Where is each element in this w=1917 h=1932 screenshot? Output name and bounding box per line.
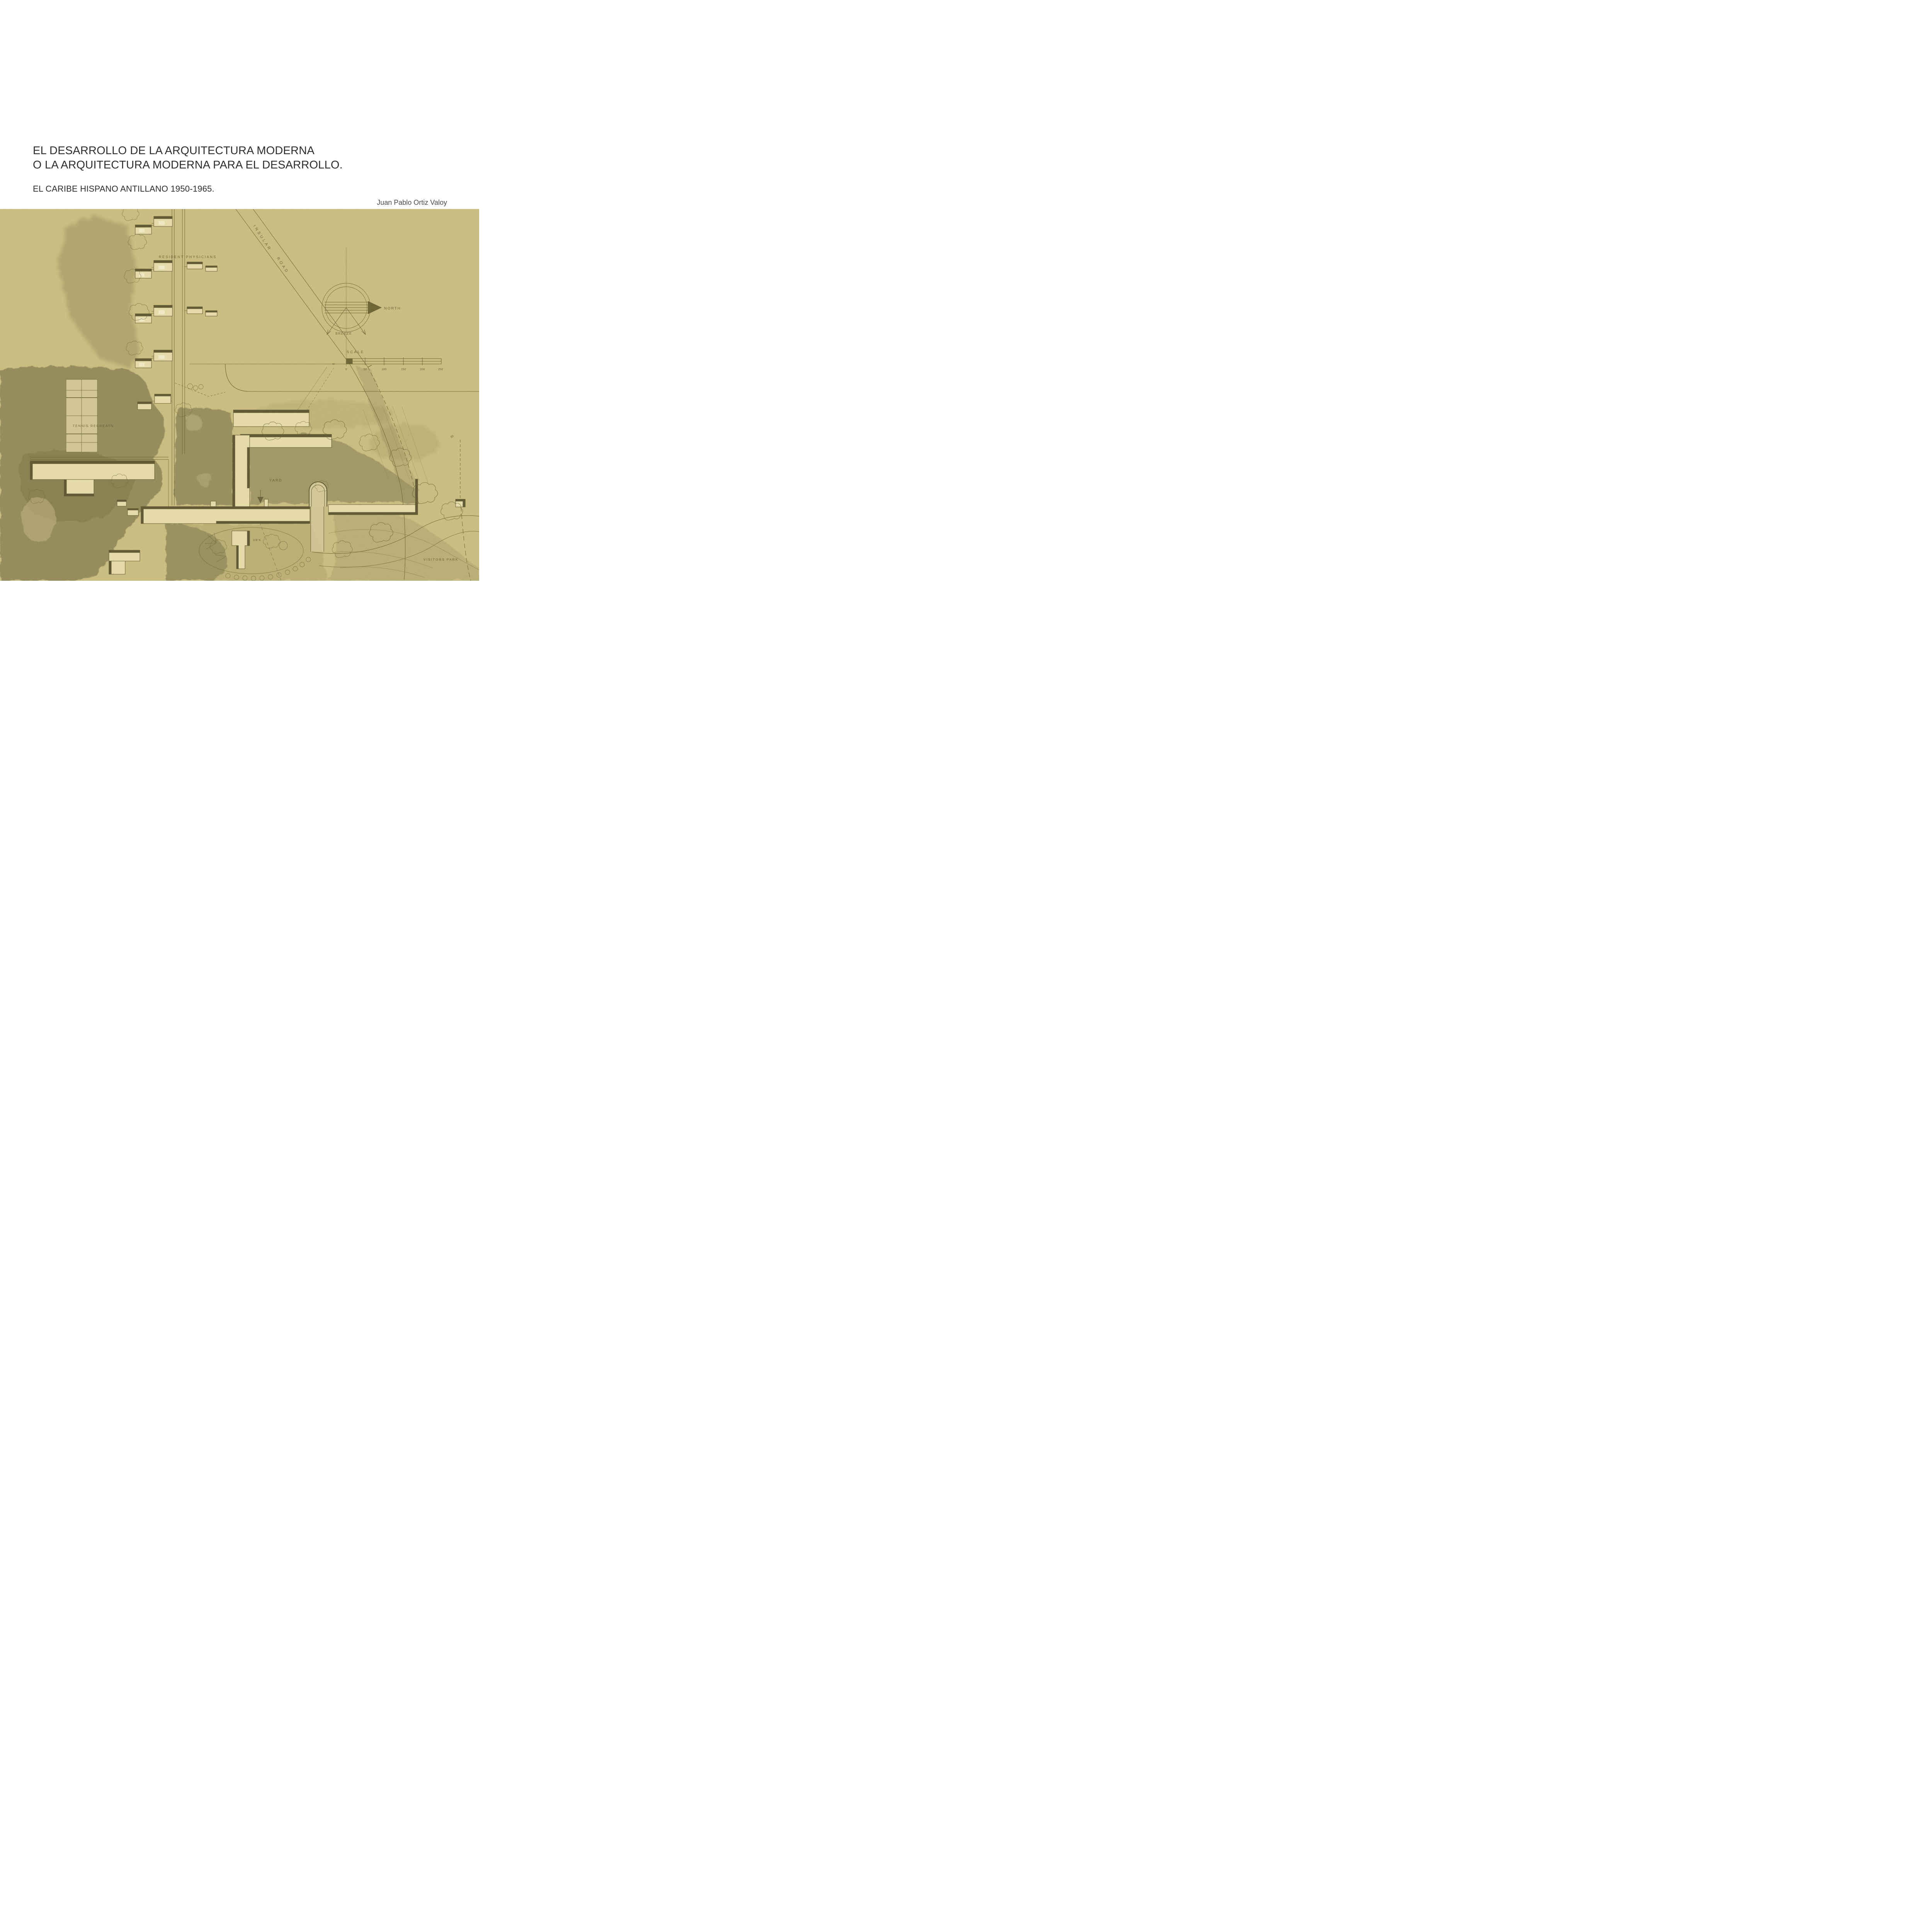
paper-grain-texture: [0, 209, 479, 581]
title-line-2: O LA ARQUITECTURA MODERNA PARA EL DESARR…: [33, 158, 343, 172]
document-page: EL DESARROLLO DE LA ARQUITECTURA MODERNA…: [0, 0, 479, 678]
site-plan-drawing: RESIDENT PHYSICIANS INSULAR ROAD NORTH B…: [0, 209, 479, 581]
site-plan-figure: RESIDENT PHYSICIANS INSULAR ROAD NORTH B…: [0, 209, 479, 581]
title-line-1: EL DESARROLLO DE LA ARQUITECTURA MODERNA: [33, 144, 343, 158]
page-title: EL DESARROLLO DE LA ARQUITECTURA MODERNA…: [33, 144, 343, 172]
page-subtitle: EL CARIBE HISPANO ANTILLANO 1950-1965.: [33, 184, 214, 194]
author-name: Juan Pablo Ortiz Valoy: [377, 199, 447, 206]
